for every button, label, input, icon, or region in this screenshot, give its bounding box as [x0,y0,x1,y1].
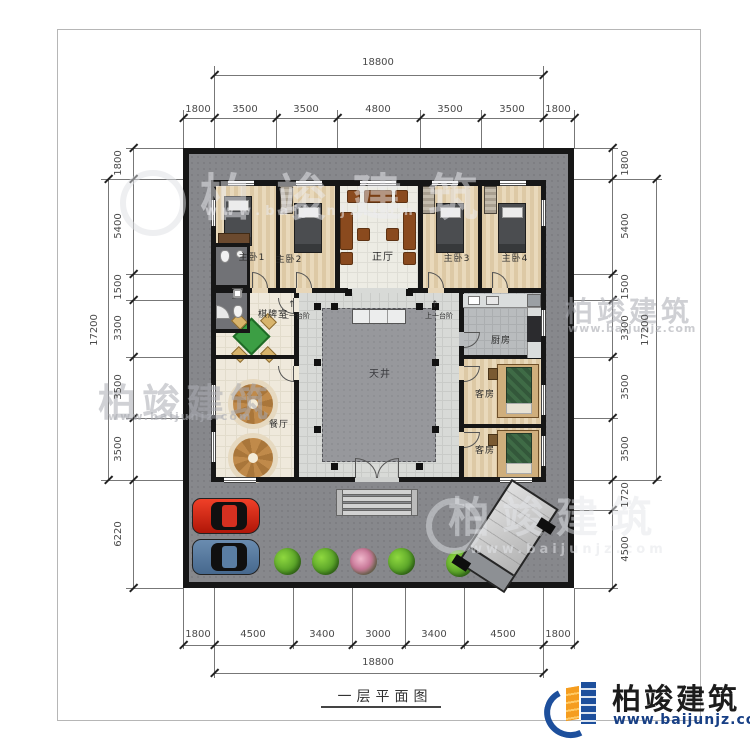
fridge-icon [527,294,541,307]
dim-label: 3500 [430,104,470,116]
door-gap [294,366,299,380]
dim-label: 3500 [620,427,632,471]
watermark-logo-icon [120,170,186,236]
door-gap [492,288,508,293]
dim-label: 3500 [225,104,265,116]
toilet-icon [233,305,243,318]
dim-label: 3400 [414,629,454,641]
step-arrow-right: ↑ [431,301,439,310]
door-swing-arc [377,458,399,478]
dimension-line [126,300,183,301]
dimension-line [405,588,406,649]
bush [312,548,339,575]
logo-website-url: www.baijunjz.com [613,712,750,728]
step-note-left: 上一台阶 [282,312,312,320]
window-mullion [543,200,544,226]
dim-label-total: 18800 [338,57,418,69]
window-mullion [213,432,214,462]
dim-label: 3500 [113,365,125,409]
watermark-text: 柏竣建筑 [200,158,504,230]
window-mullion [543,436,544,466]
bush [274,548,301,575]
red-car [192,498,260,534]
room-label-master2: 主卧2 [267,255,311,266]
room-label-master4: 主卧4 [493,254,537,265]
dim-label: 3000 [358,629,398,641]
dim-label: 1800 [113,141,125,185]
wall-segment [399,477,459,482]
dimension-line [183,118,574,119]
dim-label-total: 17200 [640,308,652,352]
wall-segment [211,355,298,359]
dim-label: 3500 [620,365,632,409]
column [416,303,423,310]
door-swing-arc [464,332,480,348]
window-mullion [224,480,256,481]
door-swing-arc [464,366,480,382]
step-tread [342,510,412,516]
watermark-url: www.baijunjz.com [568,322,696,335]
dim-label: 6220 [113,512,125,556]
door-swing-arc [252,272,268,288]
window-mullion [543,310,544,336]
dim-label: 3500 [286,104,326,116]
column [331,463,338,470]
dim-label: 1720 [620,473,632,517]
dim-label-total: 17200 [89,308,101,352]
dimension-line [293,588,294,649]
door-gap [428,288,444,293]
dim-label: 4500 [233,629,273,641]
car-roof [222,546,237,568]
dimension-line [101,480,183,481]
dim-label: 1800 [620,141,632,185]
dim-label: 4500 [483,629,523,641]
dimension-line [574,179,662,180]
room-label-guest2: 客房 [463,446,507,457]
room-label-hall: 正厅 [361,252,405,263]
step-arrow-left: ↑ [288,301,296,310]
dimension-line [126,148,183,149]
dim-label: 3400 [302,629,342,641]
dim-label: 1500 [113,265,125,309]
dim-label: 1800 [538,104,578,116]
column [314,426,321,433]
column [314,303,321,310]
dimension-line [464,588,465,649]
dim-label: 3500 [492,104,532,116]
dim-label: 3300 [113,306,125,350]
room-label-guest1: 客房 [463,390,507,401]
column [406,289,413,296]
column [314,359,321,366]
room-label-master3: 主卧3 [435,254,479,265]
dim-label: 1800 [178,104,218,116]
dimension-line [214,673,543,674]
dim-label: 3300 [620,306,632,350]
column [416,463,423,470]
wall-segment [211,285,250,288]
dimension-line [352,588,353,649]
dimension-line [126,274,183,275]
car-roof [222,505,237,527]
room-label-courtyard: 天井 [358,369,402,380]
dim-label: 4800 [358,104,398,116]
dim-label: 5400 [620,204,632,248]
kitchen-sink-icon [468,296,480,305]
door-swing-arc [296,272,312,288]
wall-segment [299,477,355,482]
dimension-line [574,480,662,481]
step-tread [342,489,412,495]
step-tread [342,496,412,502]
washer-icon [233,289,242,298]
dimension-line [214,75,543,76]
door-gap [296,288,312,293]
dimension-line [108,179,109,480]
dim-label-total: 18800 [338,657,418,669]
door-swing-arc [355,458,377,478]
bush-flowering [350,548,377,575]
dim-label: 1500 [620,265,632,309]
door-swing-arc [428,272,444,288]
wall-segment [459,424,546,428]
step-side [336,489,343,516]
watermark-url: www.baijunjz.com [470,542,667,557]
kitchen-range-icon [527,316,541,342]
kitchen-stove-icon [486,296,499,305]
logo-building-orange-icon [566,686,579,721]
dim-label: 5400 [113,204,125,248]
door-swing-arc [278,366,294,382]
door-gap [348,288,408,293]
blue-car [192,539,260,575]
dimension-line [126,357,183,358]
step-note-right: 上一台阶 [425,312,455,320]
dimension-line [126,588,183,589]
door-swing-arc [492,272,508,288]
column [432,359,439,366]
title-underline [321,706,441,708]
dim-label: 1800 [178,629,218,641]
window-mullion [543,385,544,415]
dimension-line [183,645,574,646]
shower-icon [216,305,230,319]
watermark-url: www.baijunjz.com [108,410,252,423]
dim-label: 1800 [538,629,578,641]
dim-label: 3500 [113,427,125,471]
room-label-kitchen: 厨房 [479,336,523,347]
drawing-title: 一层平面图 [320,686,450,706]
toilet-icon [220,250,230,263]
wall-segment [211,329,250,333]
door-gap [252,288,268,293]
column [345,289,352,296]
logo-building-blue-icon [581,682,596,724]
watermark-url: www.baijunjz.com [205,204,418,219]
step-tread [342,503,412,509]
column [331,303,338,310]
column [432,426,439,433]
step-side [411,489,418,516]
bush [388,548,415,575]
wall-segment [211,243,250,247]
dim-label: 4500 [620,527,632,571]
